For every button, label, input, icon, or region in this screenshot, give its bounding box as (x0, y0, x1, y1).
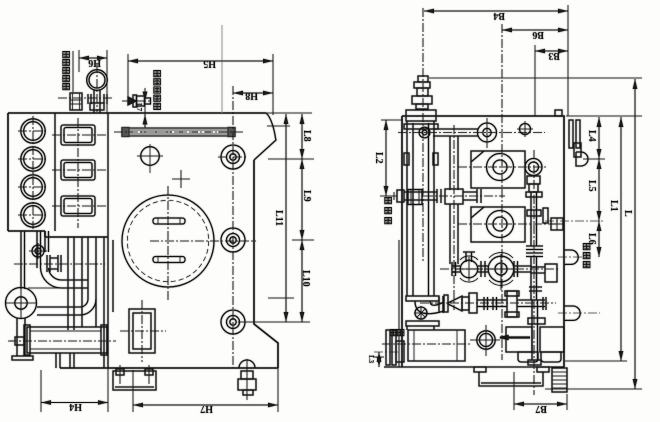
svg-text:H6: H6 (88, 57, 101, 68)
svg-text:L10: L10 (300, 270, 311, 287)
svg-text:H4: H4 (69, 401, 82, 412)
svg-text:H7: H7 (200, 403, 213, 414)
svg-text:B6: B6 (532, 29, 544, 40)
svg-text:L11: L11 (273, 210, 284, 226)
svg-text:L7: L7 (135, 103, 143, 112)
svg-text:L9: L9 (301, 190, 312, 202)
svg-text:L3: L3 (367, 355, 375, 364)
svg-text:B4: B4 (493, 10, 505, 21)
svg-text:H5: H5 (203, 58, 216, 69)
svg-text:L6: L6 (586, 233, 597, 245)
svg-text:B3: B3 (548, 50, 560, 61)
svg-text:L2: L2 (373, 152, 384, 164)
svg-text:L4: L4 (586, 130, 597, 142)
svg-text:H8: H8 (245, 90, 258, 101)
svg-text:L5: L5 (586, 180, 597, 192)
svg-text:L1: L1 (608, 200, 619, 212)
svg-text:B7: B7 (535, 403, 547, 414)
svg-text:L8: L8 (301, 130, 312, 142)
svg-text:L: L (622, 210, 633, 217)
